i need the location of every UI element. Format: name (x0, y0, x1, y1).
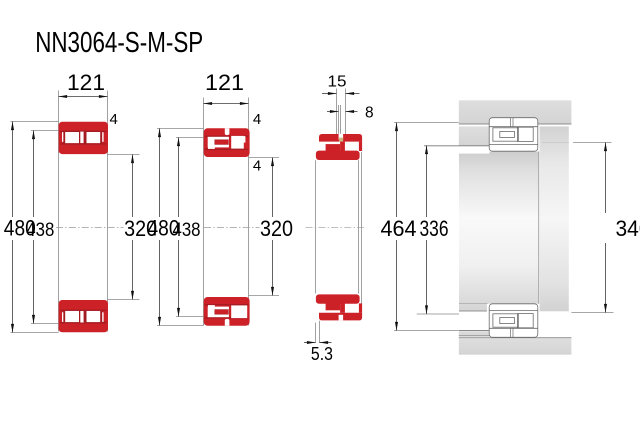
svg-text:340: 340 (616, 216, 640, 241)
svg-text:121: 121 (67, 70, 105, 95)
svg-text:121: 121 (205, 70, 244, 95)
svg-text:4: 4 (253, 157, 261, 174)
svg-text:NN3064-S-M-SP: NN3064-S-M-SP (35, 27, 203, 59)
svg-text:15: 15 (328, 74, 347, 91)
svg-text:4: 4 (110, 111, 118, 128)
svg-text:5.3: 5.3 (311, 343, 333, 364)
svg-text:438: 438 (173, 220, 201, 241)
svg-text:4: 4 (253, 111, 261, 128)
svg-text:320: 320 (260, 216, 293, 241)
svg-text:438: 438 (26, 220, 54, 241)
svg-text:464: 464 (381, 216, 417, 241)
svg-text:8: 8 (365, 105, 374, 122)
svg-text:336: 336 (420, 216, 449, 241)
